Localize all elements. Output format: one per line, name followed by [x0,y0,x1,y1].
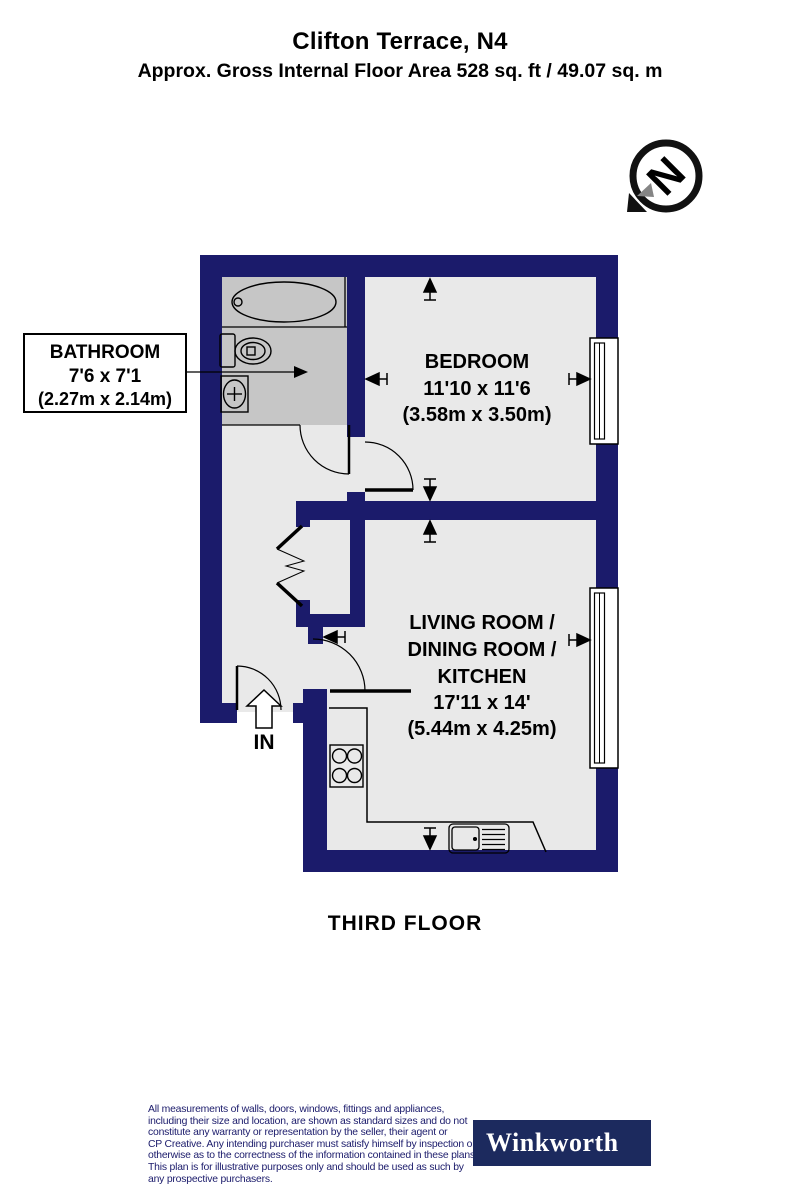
disclaimer-text: All measurements of walls, doors, window… [148,1104,488,1185]
bedroom-dims-m: (3.58m x 3.50m) [403,404,552,426]
disclaimer-line: This plan is for illustrative purposes o… [148,1162,488,1174]
disclaimer-line: constitute any warranty or representatio… [148,1127,488,1139]
living-name-3: KITCHEN [438,666,527,688]
disclaimer-line: any prospective purchasers. [148,1174,488,1186]
bedroom-window [590,338,618,444]
living-name-1: LIVING ROOM / [409,612,555,634]
living-dims-ft: 17'11 x 14' [433,692,530,714]
entrance-label: IN [254,731,275,754]
living-room-window [590,588,618,768]
living-dims-m: (5.44m x 4.25m) [408,718,557,740]
bedroom-label: BEDROOM 11'10 x 11'6 (3.58m x 3.50m) [403,351,552,426]
living-name-2: DINING ROOM / [408,639,557,661]
bedroom-dims-ft: 11'10 x 11'6 [423,378,530,400]
disclaimer-line: CP Creative. Any intending purchaser mus… [148,1139,488,1151]
floor-plan: N [0,0,800,1200]
bedroom-name: BEDROOM [425,351,529,373]
winkworth-logo: Winkworth [473,1120,651,1166]
bathroom-label: BATHROOM 7'6 x 7'1 (2.27m x 2.14m) [24,334,186,412]
brand-name: Winkworth [473,1128,619,1158]
disclaimer-line: All measurements of walls, doors, window… [148,1104,488,1116]
bathroom-dims-ft: 7'6 x 7'1 [69,366,142,387]
bathroom-name: BATHROOM [50,342,160,363]
floor-level-label: THIRD FLOOR [0,912,800,936]
bathroom-dims-m: (2.27m x 2.14m) [38,389,172,409]
disclaimer-line: otherwise as to the correctness of the i… [148,1150,488,1162]
north-compass-icon: N [627,143,699,212]
disclaimer-line: including their size and location, are s… [148,1116,488,1128]
